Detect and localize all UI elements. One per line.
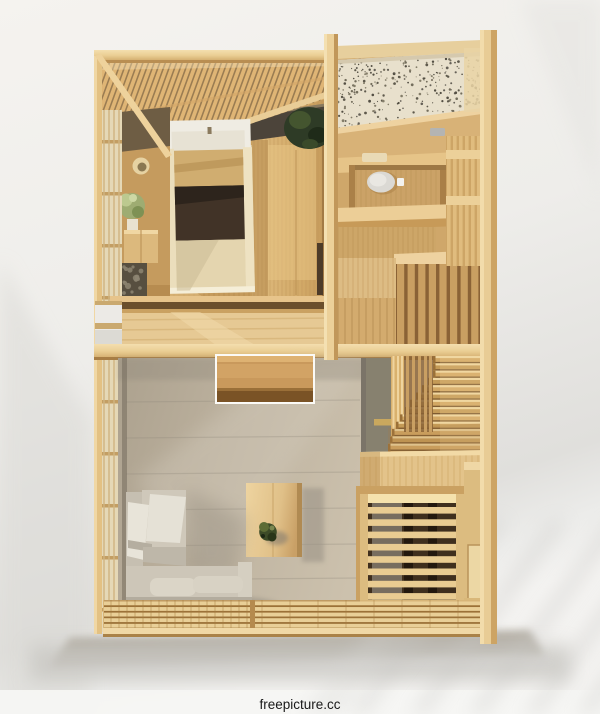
svg-text:freepicture.cc: freepicture.cc <box>259 697 340 712</box>
